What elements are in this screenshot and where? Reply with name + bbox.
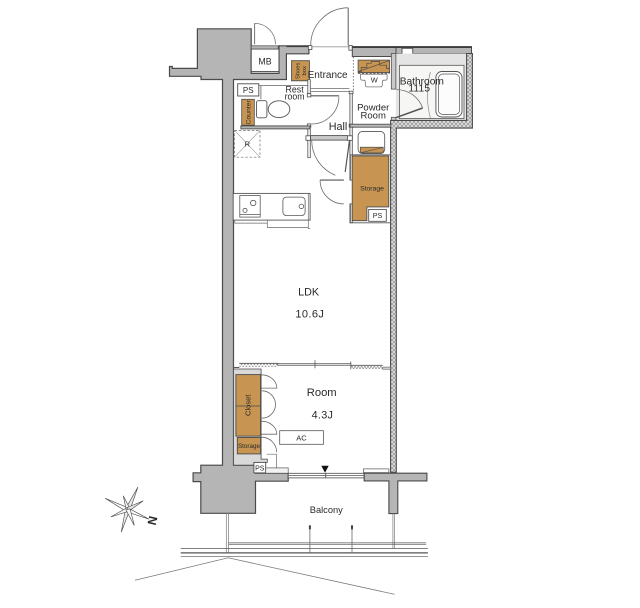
svg-text:room: room xyxy=(285,91,305,101)
svg-text:Closet: Closet xyxy=(244,394,253,416)
svg-text:Hall: Hall xyxy=(329,121,348,133)
svg-text:1115: 1115 xyxy=(408,84,430,95)
svg-text:Storage: Storage xyxy=(360,186,384,193)
svg-text:Shoes: Shoes xyxy=(296,62,302,79)
svg-text:Room: Room xyxy=(361,110,386,121)
svg-text:Room: Room xyxy=(307,387,337,399)
svg-text:MB: MB xyxy=(258,56,271,66)
svg-text:PS: PS xyxy=(255,466,265,473)
svg-text:PS: PS xyxy=(243,86,254,95)
svg-text:PS: PS xyxy=(373,211,383,220)
svg-text:R: R xyxy=(245,140,251,149)
svg-text:AC: AC xyxy=(296,433,307,442)
svg-text:Entrance: Entrance xyxy=(308,70,348,81)
svg-text:4.3J: 4.3J xyxy=(312,409,334,421)
svg-text:Storage: Storage xyxy=(238,443,261,450)
svg-text:LDK: LDK xyxy=(298,286,320,298)
svg-text:Balcony: Balcony xyxy=(310,505,343,515)
svg-text:Counter: Counter xyxy=(246,99,253,124)
svg-text:W: W xyxy=(371,75,378,84)
svg-text:10.6J: 10.6J xyxy=(295,308,324,320)
